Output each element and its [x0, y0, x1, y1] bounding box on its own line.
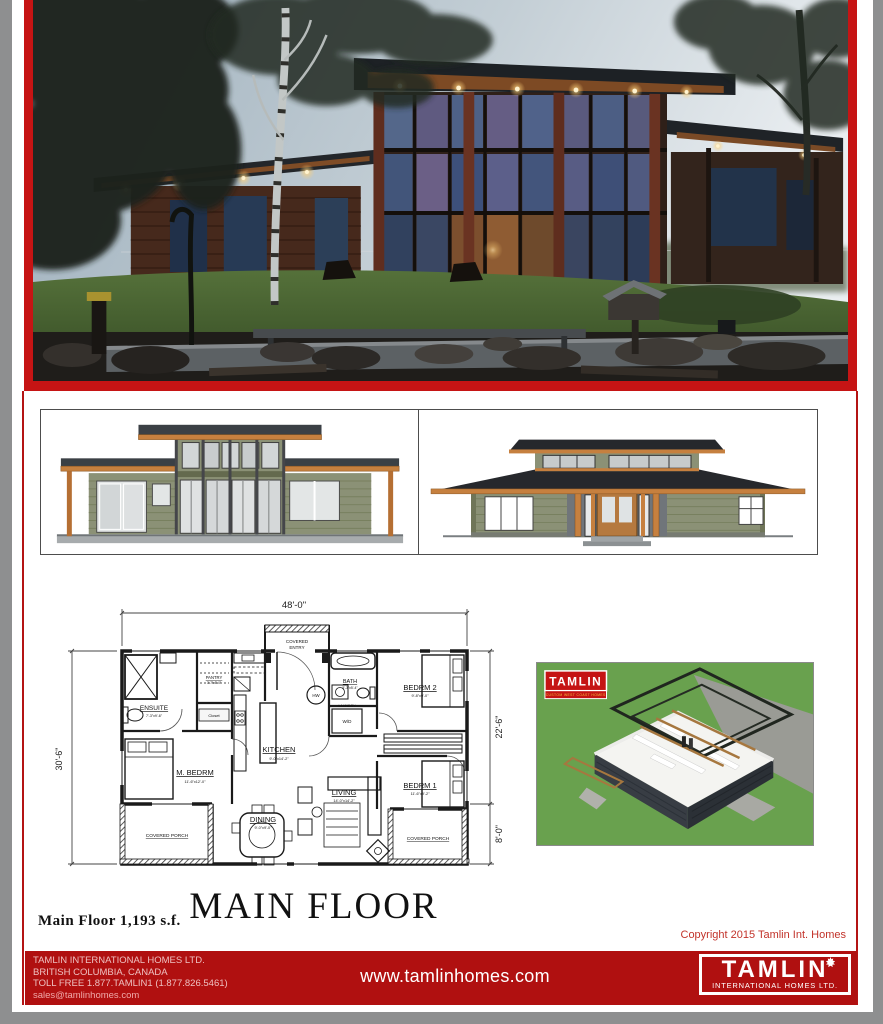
footer-bar: TAMLIN INTERNATIONAL HOMES LTD. BRITISH …: [25, 951, 857, 1005]
room-size: 3'-7"x5'-0": [207, 681, 221, 685]
house-photo-dusk: [33, 0, 848, 381]
figure: [689, 738, 693, 749]
floor-plan-drawing: 48'-0" 30'-6" 22'-6" 8'-0": [32, 591, 532, 891]
maple-leaf-icon: [825, 957, 836, 968]
footer-email: sales@tamlinhomes.com: [33, 990, 228, 1002]
figure: [682, 736, 686, 747]
render-logo-text: TAMLIN: [549, 675, 602, 689]
glass-curtain-wall: [377, 95, 667, 285]
front-elevation-drawing: [41, 410, 419, 554]
isometric-render-box: TAMLIN CUSTOM WEST COAST HOMES: [536, 662, 814, 846]
isometric-render: TAMLIN CUSTOM WEST COAST HOMES: [537, 663, 813, 845]
covered-entry-label: COVERED: [286, 639, 309, 644]
room-size: 7'-3"x9'-6": [146, 714, 163, 718]
dim-overall-width: 48'-0": [282, 600, 306, 611]
tamlin-footer-logo: TAMLIN INTERNATIONAL HOMES LTD.: [699, 954, 851, 995]
room-size: 11'-6"x9'-2": [411, 792, 431, 796]
room-label: BEDRM 2: [403, 683, 436, 692]
room-size: 9'-0"x9'-0": [254, 826, 272, 830]
room-label: BATH: [343, 679, 357, 685]
washer-dryer-label: W/D: [343, 719, 353, 724]
content-area: 48'-0" 30'-6" 22'-6" 8'-0": [22, 391, 858, 1005]
room-label: M. BEDRM: [176, 768, 214, 777]
front-elevation-box: [40, 409, 420, 555]
footer-phone: TOLL FREE 1.877.TAMLIN1 (1.877.826.5461): [33, 978, 228, 990]
plan-area-label: Main Floor 1,193 s.f.: [38, 913, 181, 930]
room-label: KITCHEN: [263, 745, 296, 754]
dim-overall-depth: 30'-6": [54, 748, 64, 771]
room-label: PANTRY: [206, 675, 223, 680]
dim-house-depth: 22'-6": [494, 716, 504, 739]
room-size: 9'-8"x9'-0": [411, 694, 429, 698]
dim-porch-depth: 8'-0": [494, 825, 504, 843]
room-size: 5'-3"x5'-4": [342, 686, 358, 690]
room-label: LIVING: [332, 788, 357, 797]
footer-location: BRITISH COLUMBIA, CANADA: [33, 967, 228, 979]
closet-label: Closet: [208, 713, 220, 718]
room-label: DINING: [250, 815, 276, 824]
laundry-label: LAUNDRY: [338, 704, 356, 708]
copyright-text: Copyright 2015 Tamlin Int. Homes: [681, 929, 847, 941]
footer-contact-block: TAMLIN INTERNATIONAL HOMES LTD. BRITISH …: [33, 955, 228, 1001]
footer-logo-subtext: INTERNATIONAL HOMES LTD.: [702, 982, 848, 990]
entry-elevation-box: [418, 409, 818, 555]
room-size: 11'-6"x12'-0": [185, 780, 207, 784]
room-label: BEDRM 1: [403, 781, 436, 790]
hot-water-label: HW: [312, 693, 320, 698]
tamlin-render-logo: TAMLIN CUSTOM WEST COAST HOMES: [545, 671, 607, 699]
house-photo-frame: [24, 0, 857, 391]
entry-elevation-drawing: [419, 410, 817, 554]
plan-title: MAIN FLOOR: [134, 885, 494, 928]
room-label: ENSUITE: [140, 705, 169, 712]
covered-entry-label: ENTRY: [289, 645, 304, 650]
covered-porch-label: COVERED PORCH: [146, 833, 189, 839]
footer-website-link[interactable]: www.tamlinhomes.com: [325, 966, 585, 987]
room-size: 14'-0"x14'-2": [333, 799, 355, 803]
footer-company: TAMLIN INTERNATIONAL HOMES LTD.: [33, 955, 228, 967]
floor-plan: 48'-0" 30'-6" 22'-6" 8'-0": [32, 591, 532, 891]
render-logo-tagline: CUSTOM WEST COAST HOMES: [546, 693, 606, 697]
covered-porch-label: COVERED PORCH: [407, 836, 450, 842]
room-size: 9'-0"x14'-2": [269, 757, 289, 761]
